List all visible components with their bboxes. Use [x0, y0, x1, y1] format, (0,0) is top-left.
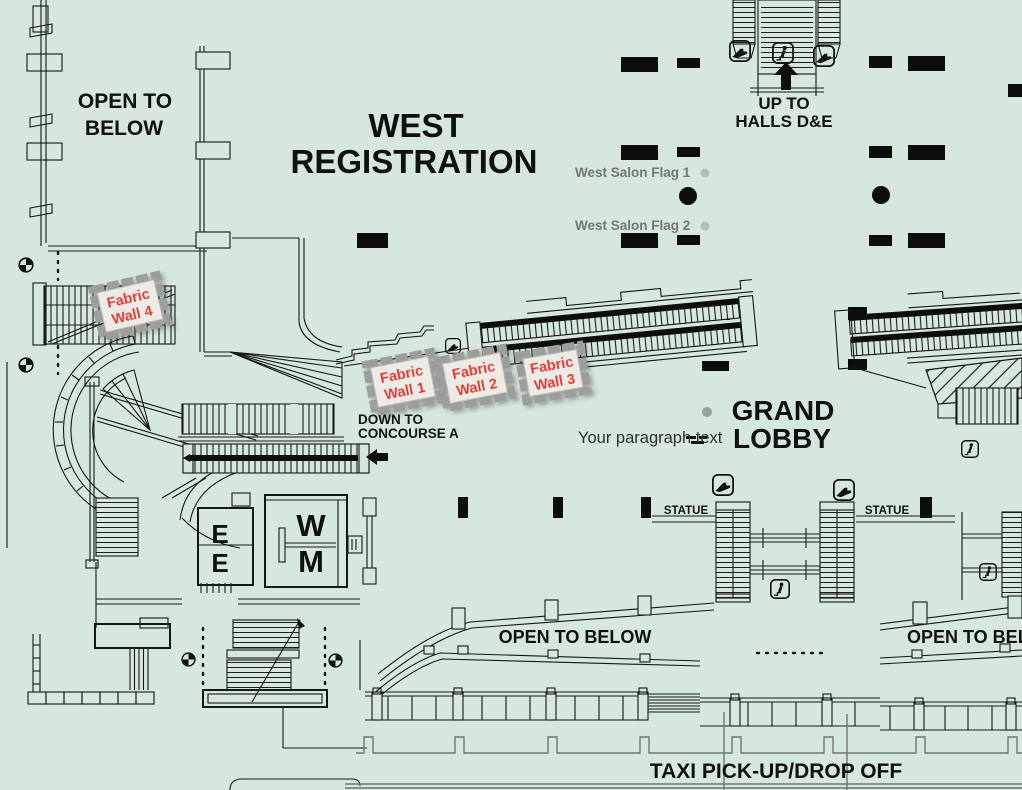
right-ramp-structures	[862, 358, 1022, 457]
statue-left-label: STATUE	[664, 505, 709, 517]
open-to-below-right-label: OPEN TO BELOW	[907, 627, 1022, 647]
center-bridge-stairs	[716, 502, 854, 602]
flag-dot-icon	[701, 169, 710, 178]
bottom-left-stairs	[203, 618, 367, 790]
flag-dot-icon	[701, 222, 710, 231]
open-to-below-top-label-line1: OPEN TO	[78, 90, 172, 113]
your-paragraph-text-label[interactable]: Your paragraph text	[578, 429, 723, 447]
colonnade	[365, 688, 1022, 730]
benchmark-icon	[182, 653, 195, 666]
concourse-corridor-wall	[204, 238, 342, 356]
benchmark-icon	[329, 654, 342, 667]
fabric-wall-2-annotation[interactable]: Fabric Wall 2	[438, 348, 512, 408]
open-to-below-top-label-line2: BELOW	[85, 117, 163, 140]
benchmark-icon	[19, 258, 33, 272]
stairs-person-icon	[962, 441, 979, 458]
escalator-icon	[834, 480, 854, 500]
up-to-halls-label-line2: HALLS D&E	[735, 112, 832, 131]
down-to-concourse-label-line1: DOWN TO	[358, 412, 423, 427]
halls-de-escalator	[730, 0, 840, 96]
paragraph-dot-icon	[702, 407, 712, 417]
balcony-center	[372, 596, 714, 701]
restroom-sign-icon	[348, 536, 362, 553]
west-registration-label-line2: REGISTRATION	[291, 143, 538, 180]
registration-column-wall	[196, 46, 230, 352]
right-escalator	[834, 286, 1022, 369]
west-salon-flag-2-annotation[interactable]: West Salon Flag 2	[575, 218, 710, 233]
statue-right-label: STATUE	[865, 505, 910, 517]
taxi-pickup-label: TAXI PICK-UP/DROP OFF	[650, 760, 903, 783]
open-to-below-center-label: OPEN TO BELOW	[499, 627, 652, 647]
grand-lobby-label-line1: GRAND	[732, 395, 835, 426]
west-salon-flag-1-annotation[interactable]: West Salon Flag 1	[575, 165, 710, 180]
fabric-wall-4-annotation[interactable]: Fabric Wall 4	[92, 275, 167, 337]
benchmark-icon	[19, 358, 33, 372]
west-salon-flag-2-label[interactable]: West Salon Flag 2	[575, 218, 690, 233]
restroom-women-label: W	[296, 508, 326, 543]
left-exterior-wall	[7, 0, 207, 548]
west-salon-flag-1-label[interactable]: West Salon Flag 1	[575, 165, 691, 180]
your-paragraph-annotation[interactable]: Your paragraph text	[578, 407, 723, 447]
concourse-escalator	[162, 444, 388, 498]
elevator-label-bottom: E	[211, 548, 228, 578]
elevator-label-top: E	[211, 519, 228, 549]
fabric-wall-3-annotation[interactable]: Fabric Wall 3	[518, 345, 587, 401]
escalator-icon	[713, 475, 733, 495]
floor-plan-canvas: OPEN TO BELOW WEST REGISTRATION UP TO HA…	[0, 0, 1022, 790]
floor-plan-svg: OPEN TO BELOW WEST REGISTRATION UP TO HA…	[0, 0, 1022, 790]
restroom-men-label: M	[298, 544, 324, 579]
right-bridge-stairs	[962, 512, 1022, 600]
escalator-icon	[814, 46, 834, 66]
up-to-halls-label-line1: UP TO	[758, 94, 809, 113]
grand-lobby-label-line2: LOBBY	[733, 423, 831, 454]
down-to-concourse-label-line2: CONCOURSE A	[358, 426, 459, 441]
bottom-left-rooms	[28, 562, 360, 704]
stairs-person-icon	[771, 580, 789, 598]
west-registration-label-line1: WEST	[368, 107, 463, 144]
fabric-wall-1-annotation[interactable]: Fabric Wall 1	[366, 352, 440, 412]
